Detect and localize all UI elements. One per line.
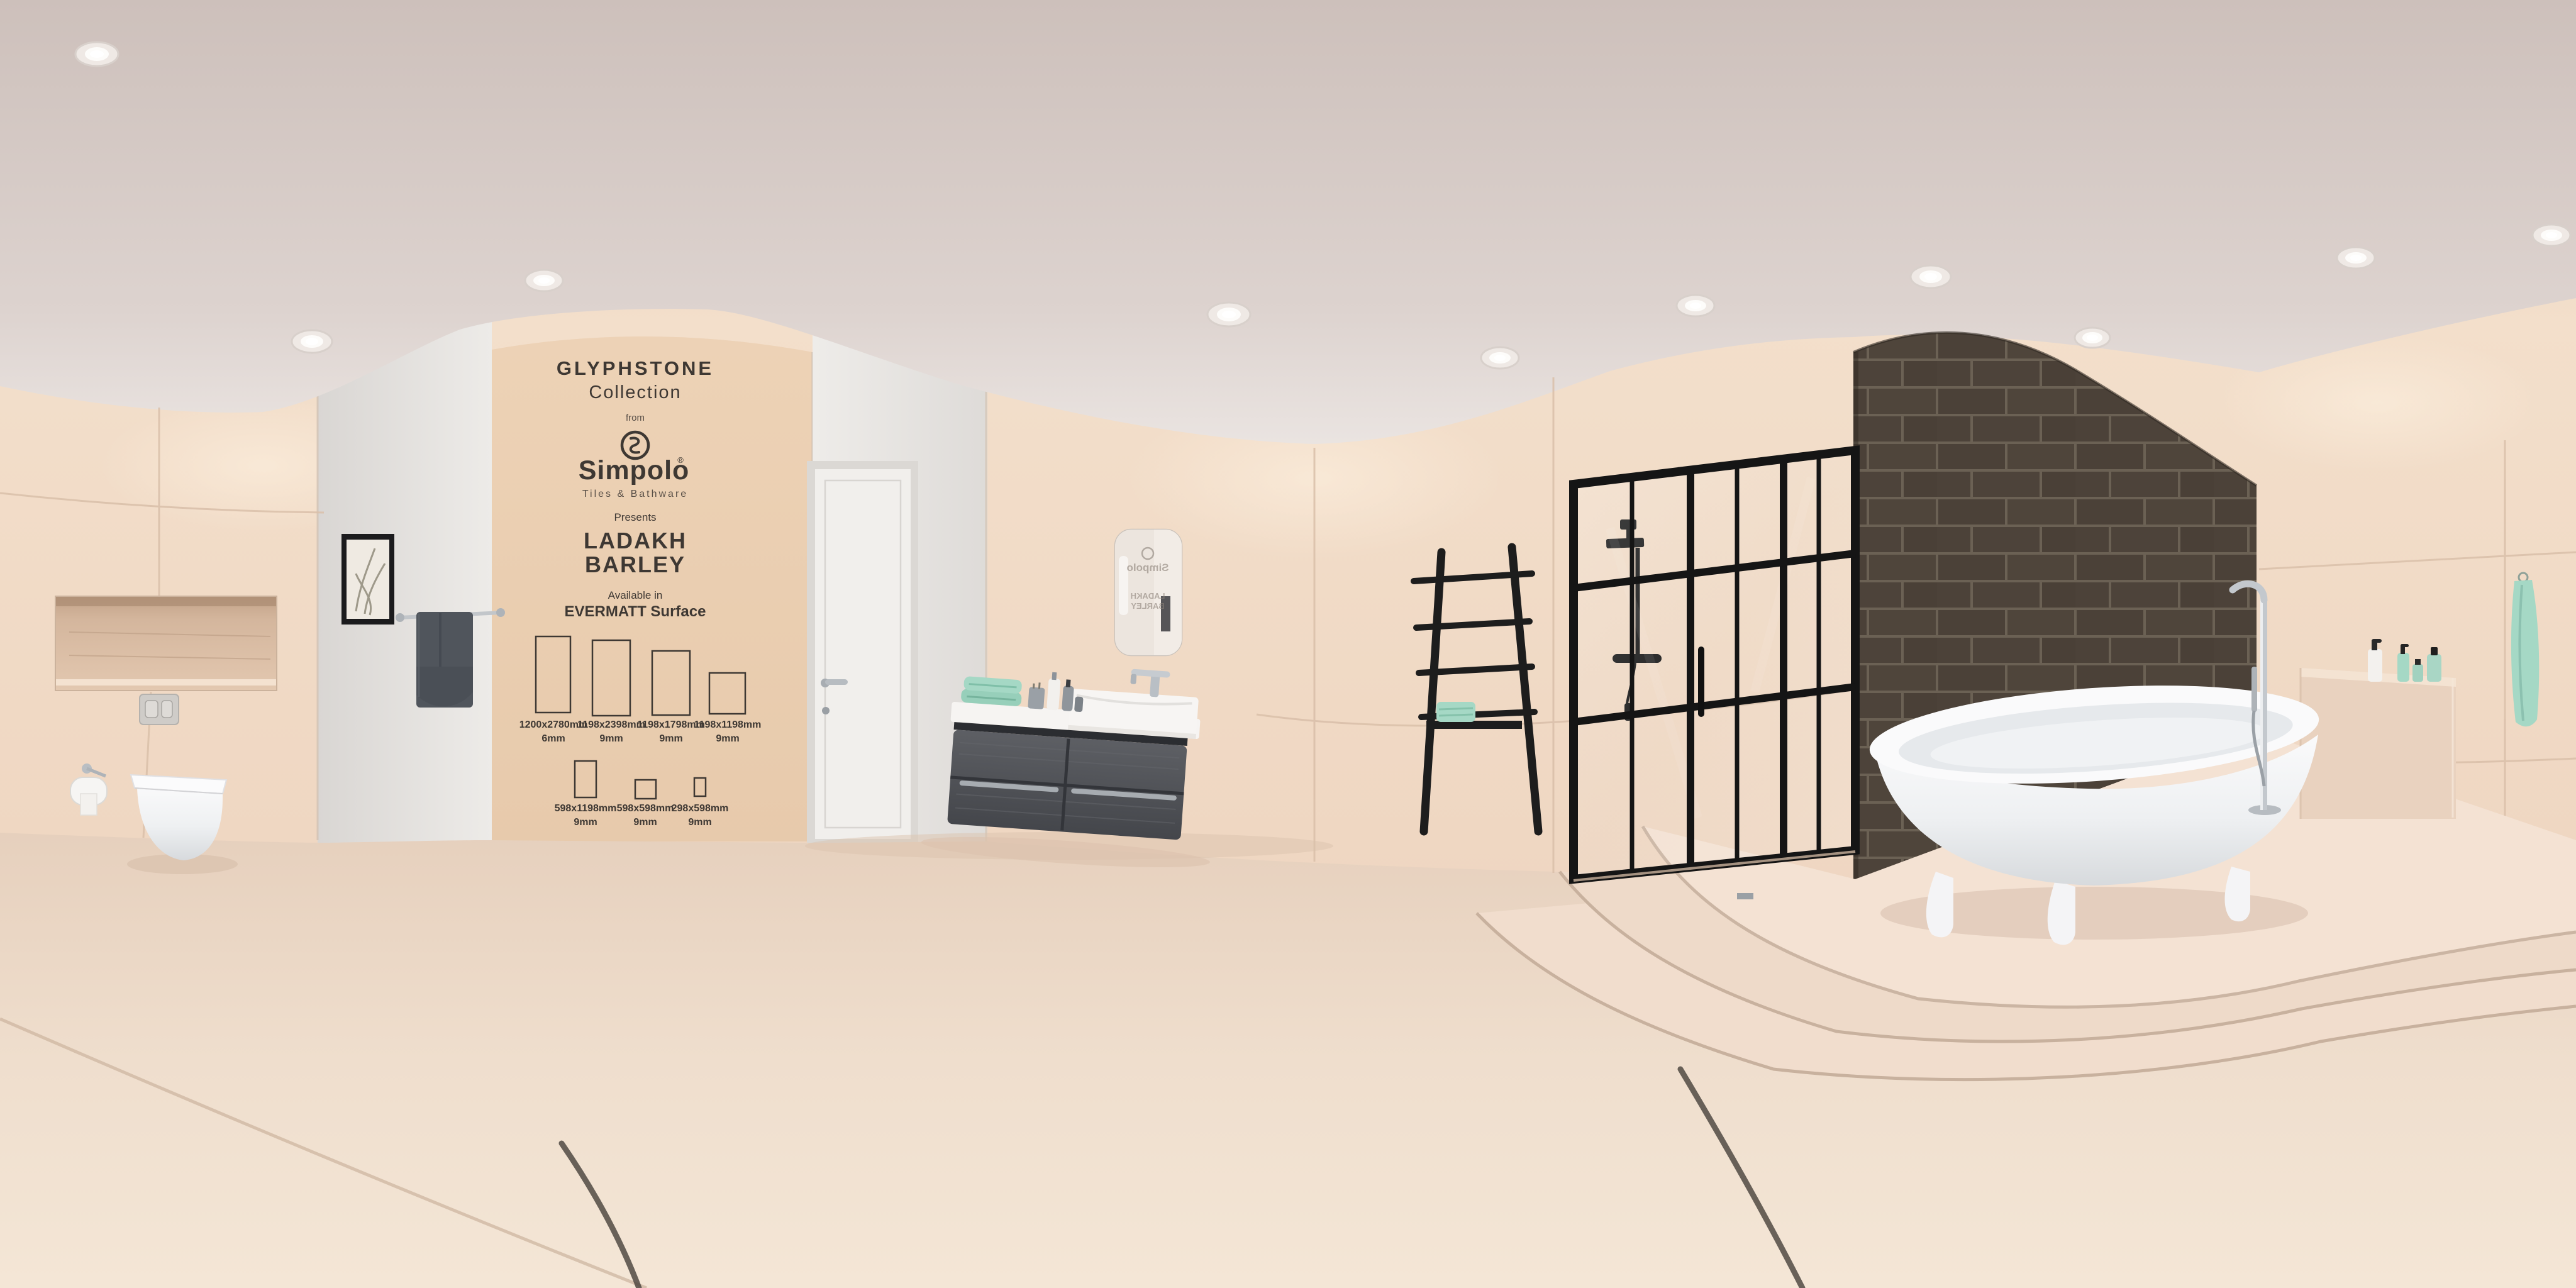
pony-wall-ledge <box>2301 668 2456 819</box>
recessed-light-icon <box>1481 347 1519 369</box>
door-slab <box>815 469 911 839</box>
svg-text:Simpolo: Simpolo <box>1126 562 1169 574</box>
tile-size-label: 298x598mm <box>672 803 729 814</box>
recessed-light-icon <box>1207 303 1250 326</box>
drain-cover <box>1737 893 1753 899</box>
poster-panel: GLYPHSTONE Collection from Simpolo ® Til… <box>492 336 813 841</box>
soap-bottle-grey-small <box>1074 696 1084 712</box>
white-pump-bottle <box>2368 649 2382 682</box>
tile-thickness-label: 9mm <box>633 817 657 828</box>
tile-thickness-label: 6mm <box>541 733 565 744</box>
poster-availability-label: Available in <box>608 589 663 601</box>
tile-size-label: 598x598mm <box>617 803 674 814</box>
soap-bottle-white <box>1046 678 1060 710</box>
poster-presents-label: Presents <box>614 511 656 523</box>
recessed-light-icon <box>292 330 332 353</box>
poster-surface-label: EVERMATT Surface <box>565 603 706 620</box>
recessed-light-icon <box>1677 295 1714 316</box>
tile-size-label: 1198x2398mm <box>577 719 645 730</box>
tile-size-label: 1198x1198mm <box>694 719 762 730</box>
mint-cap-bottle <box>2427 654 2441 682</box>
tile-thickness-label: 9mm <box>688 817 711 828</box>
door-keyhole-icon <box>822 707 830 714</box>
shower-enclosure <box>1574 450 1855 880</box>
shower-door-handle <box>1698 647 1704 717</box>
bathroom-panorama: GLYPHSTONE Collection from Simpolo ® Til… <box>0 0 2576 1288</box>
dark-towel <box>416 612 473 708</box>
wall-niche <box>55 596 277 691</box>
poster-collection-sub: Collection <box>589 382 681 402</box>
hand-shower <box>2251 667 2257 712</box>
flush-button-small <box>162 701 172 718</box>
mint-pump-bottle <box>2397 653 2409 682</box>
vanity-cabinet <box>947 722 1187 840</box>
poster-tagline: Tiles & Bathware <box>582 489 688 499</box>
poster-collection-title: GLYPHSTONE <box>557 357 714 379</box>
shower-glass <box>1574 450 1855 879</box>
recessed-light-icon <box>2533 225 2570 246</box>
mint-small-bottle <box>2412 664 2423 682</box>
recessed-light-icon <box>2337 247 2375 269</box>
mint-towel-stack <box>961 676 1023 707</box>
tile-thickness-label: 9mm <box>574 817 597 828</box>
recessed-light-icon <box>75 42 118 66</box>
recessed-light-icon <box>1911 265 1951 288</box>
ladder-towel <box>1436 702 1475 722</box>
framed-art <box>341 534 394 625</box>
toilet-flush-plate <box>140 694 179 724</box>
poster-brand: Simpolo <box>579 455 690 486</box>
vanity-mirror: Simpolo LADAKH BARLEY <box>1115 530 1182 655</box>
svg-text:LADAKH: LADAKH <box>1131 591 1165 601</box>
tile-size-label: 598x1198mm <box>555 803 617 814</box>
tile-thickness-label: 9mm <box>659 733 682 744</box>
poster-brand-registered: ® <box>677 455 684 465</box>
recessed-light-icon <box>525 270 563 291</box>
recessed-light-icon <box>2075 328 2110 348</box>
flush-button-large <box>145 701 158 718</box>
tile-thickness-label: 9mm <box>599 733 623 744</box>
poster-product-line1: LADAKH <box>584 528 687 553</box>
poster-from-label: from <box>626 413 645 423</box>
soap-bottle-grey <box>1062 686 1074 711</box>
tile-thickness-label: 9mm <box>716 733 739 744</box>
svg-text:BARLEY: BARLEY <box>1131 601 1165 611</box>
door <box>807 461 918 843</box>
poster-product-line2: BARLEY <box>585 552 686 577</box>
panorama-viewport[interactable]: GLYPHSTONE Collection from Simpolo ® Til… <box>0 0 2576 1288</box>
tumbler <box>1028 687 1045 709</box>
